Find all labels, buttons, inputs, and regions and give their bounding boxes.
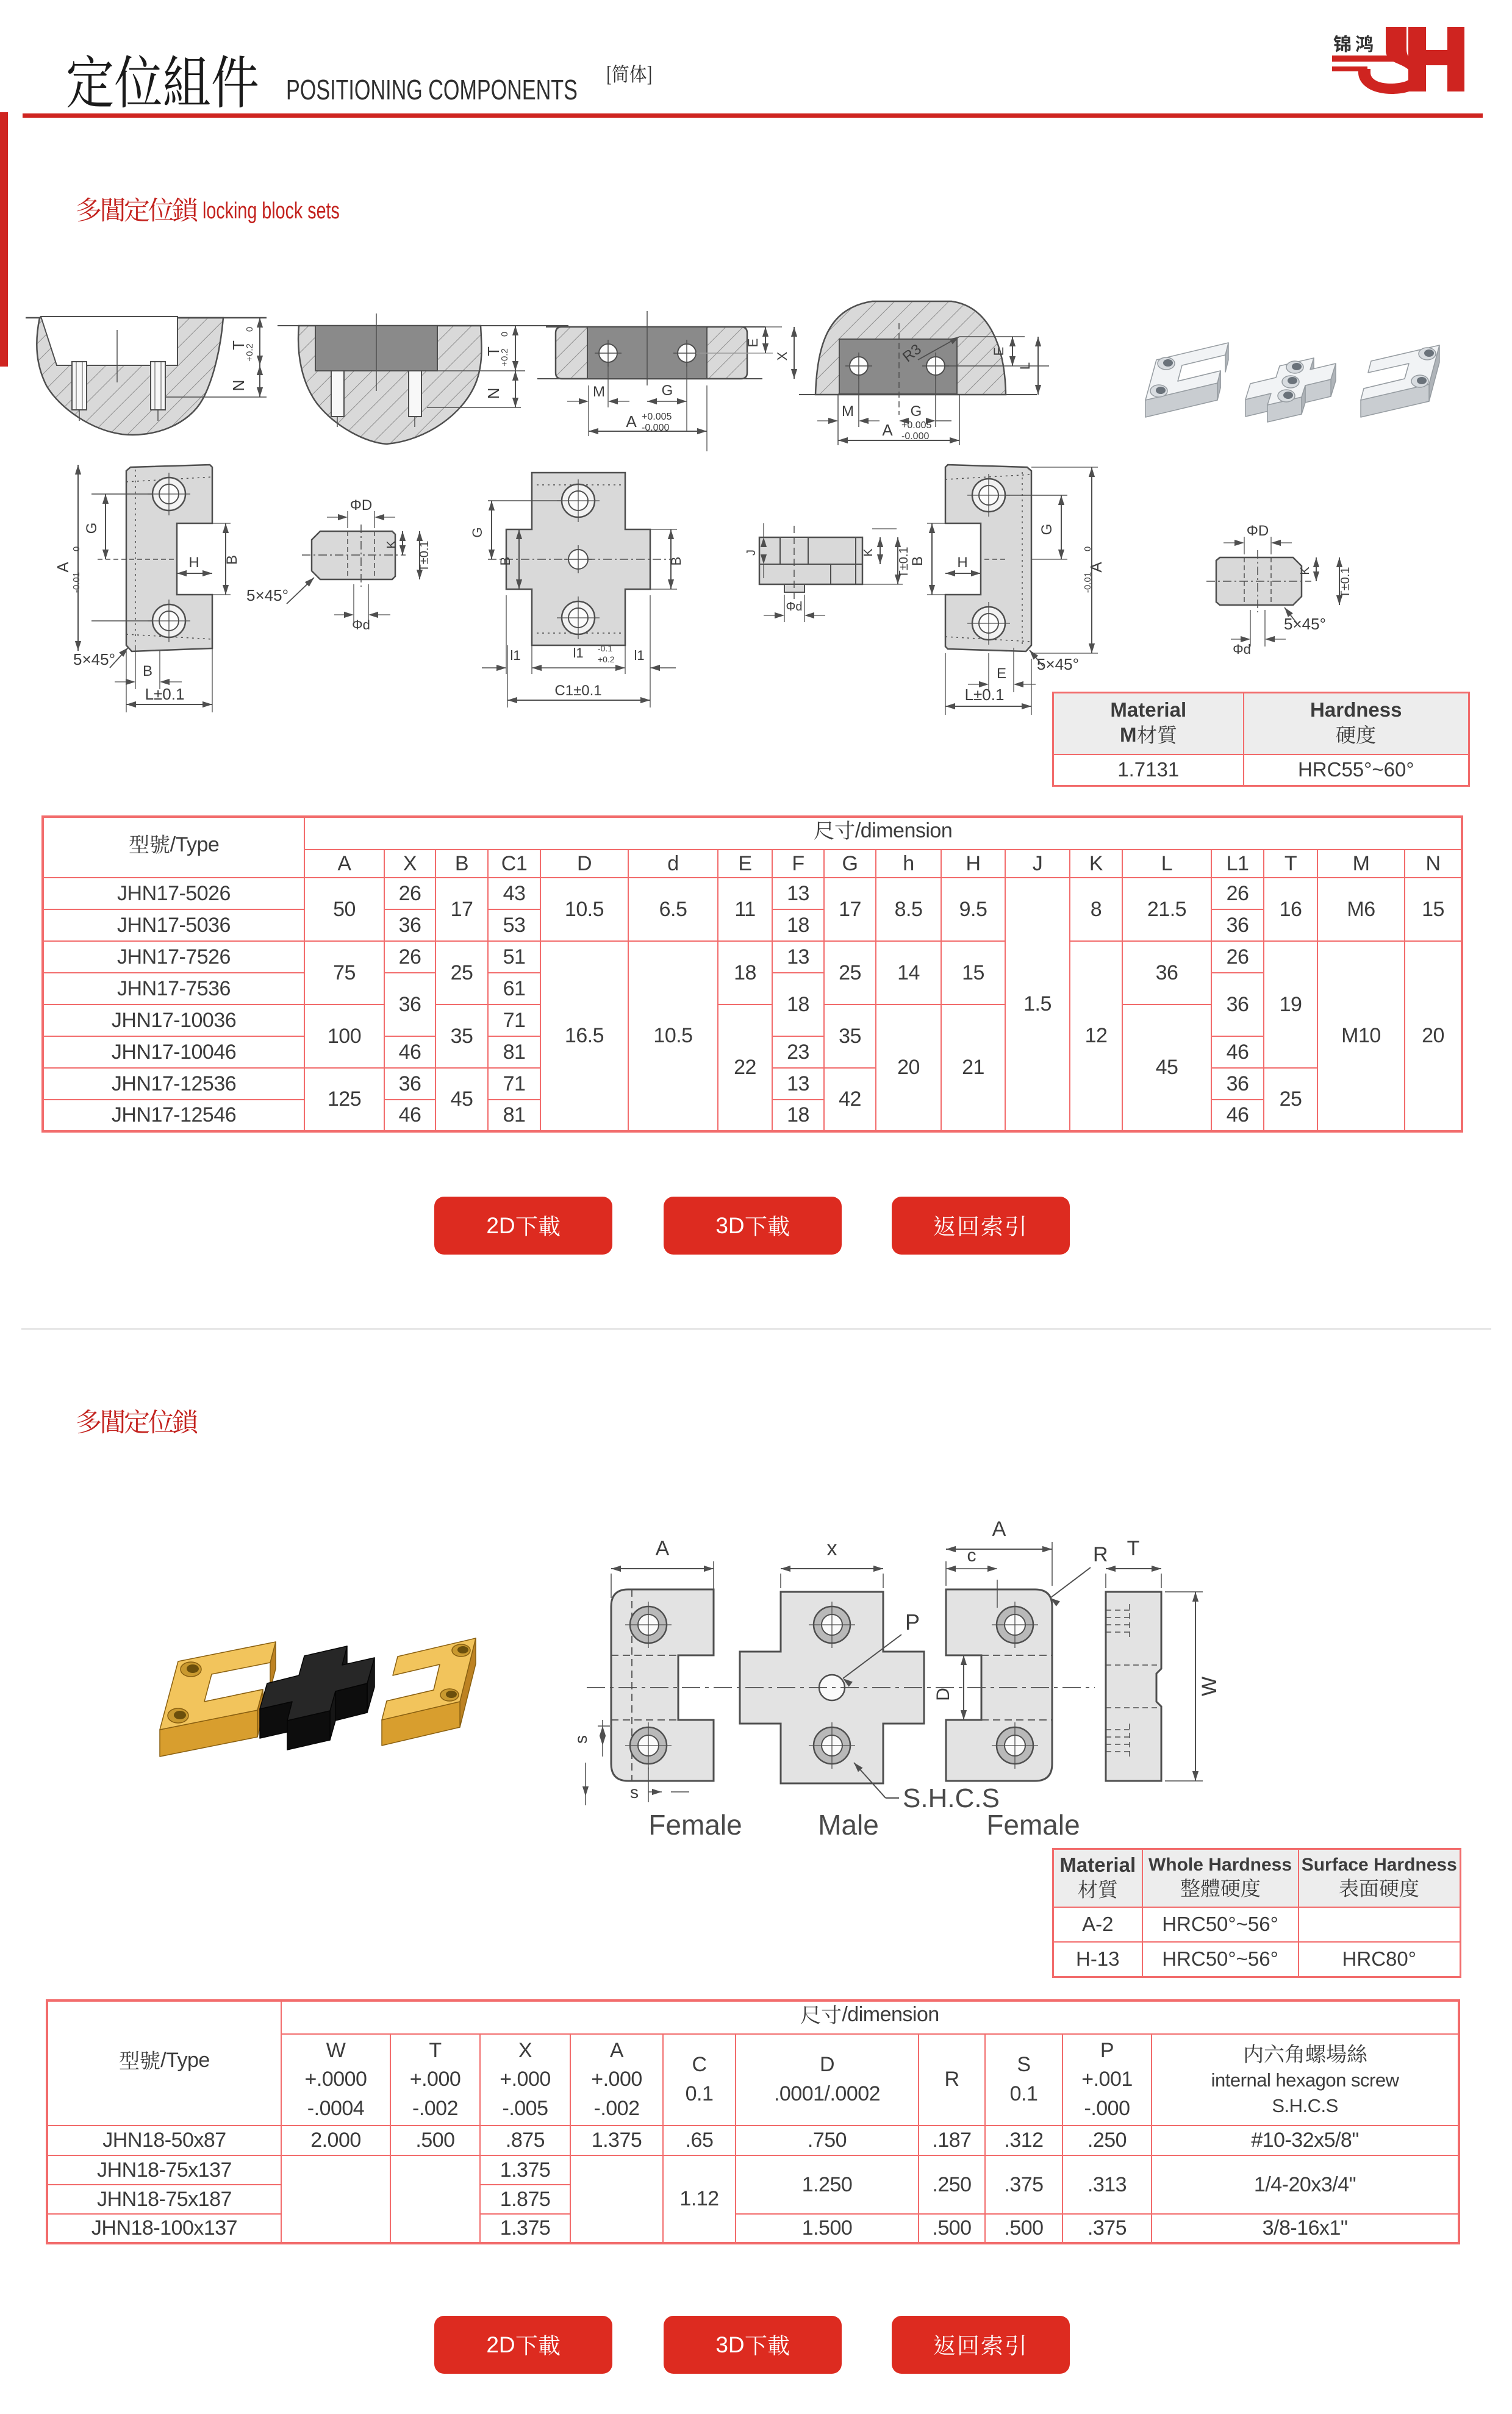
svg-text:5×45°: 5×45° bbox=[246, 586, 288, 604]
svg-text:J: J bbox=[745, 550, 758, 556]
svg-text:0: 0 bbox=[500, 332, 510, 337]
svg-text:P: P bbox=[905, 1610, 920, 1635]
svg-text:0: 0 bbox=[1083, 546, 1093, 551]
svg-text:L±0.1: L±0.1 bbox=[145, 685, 185, 703]
svg-text:A: A bbox=[882, 421, 893, 439]
svg-text:l1: l1 bbox=[634, 648, 644, 663]
svg-text:T±0.1: T±0.1 bbox=[897, 547, 911, 578]
svg-text:5×45°: 5×45° bbox=[1284, 615, 1326, 633]
svg-text:B: B bbox=[909, 556, 926, 566]
svg-text:-0.000: -0.000 bbox=[642, 423, 669, 433]
svg-text:5×45°: 5×45° bbox=[73, 650, 115, 668]
svg-text:s: s bbox=[630, 1783, 639, 1802]
svg-text:+0.005: +0.005 bbox=[642, 412, 672, 422]
svg-text:T: T bbox=[1127, 1537, 1140, 1560]
svg-text:Female: Female bbox=[986, 1809, 1080, 1841]
svg-text:0: 0 bbox=[71, 546, 82, 551]
svg-text:A: A bbox=[626, 412, 637, 431]
svg-text:+0.2: +0.2 bbox=[598, 654, 615, 664]
svg-text:N: N bbox=[484, 388, 503, 399]
svg-text:E: E bbox=[997, 665, 1006, 682]
svg-text:B: B bbox=[668, 557, 684, 566]
svg-text:-0.01: -0.01 bbox=[71, 572, 82, 593]
svg-text:E: E bbox=[991, 347, 1006, 356]
svg-text:M: M bbox=[593, 384, 605, 400]
svg-text:N: N bbox=[229, 380, 248, 392]
svg-text:K: K bbox=[862, 548, 875, 557]
svg-text:B: B bbox=[143, 663, 152, 679]
svg-text:l1: l1 bbox=[510, 648, 520, 663]
svg-text:B: B bbox=[498, 557, 513, 566]
svg-text:G: G bbox=[1039, 524, 1055, 535]
svg-text:-0.000: -0.000 bbox=[901, 431, 929, 442]
svg-text:R: R bbox=[1093, 1543, 1108, 1566]
svg-text:L±0.1: L±0.1 bbox=[965, 686, 1005, 704]
svg-text:Φd: Φd bbox=[1233, 642, 1251, 657]
svg-text:Φd: Φd bbox=[786, 600, 802, 614]
svg-text:l1: l1 bbox=[573, 645, 583, 661]
svg-text:x: x bbox=[827, 1537, 837, 1560]
svg-text:c: c bbox=[967, 1545, 976, 1566]
svg-text:ΦD: ΦD bbox=[1247, 523, 1269, 539]
svg-text:S.H.C.S: S.H.C.S bbox=[903, 1783, 1000, 1813]
svg-text:5×45°: 5×45° bbox=[1037, 655, 1079, 673]
svg-text:E: E bbox=[745, 338, 761, 348]
svg-text:G: G bbox=[84, 523, 100, 534]
svg-text:A: A bbox=[656, 1537, 670, 1560]
svg-text:+0.2: +0.2 bbox=[500, 348, 510, 367]
svg-text:A: A bbox=[54, 562, 72, 573]
svg-text:D: D bbox=[933, 1688, 953, 1701]
svg-text:L: L bbox=[1017, 362, 1033, 370]
svg-text:+0.005: +0.005 bbox=[901, 420, 931, 431]
svg-text:X: X bbox=[775, 351, 790, 360]
svg-text:Female: Female bbox=[648, 1809, 742, 1841]
svg-text:-0.1: -0.1 bbox=[598, 643, 612, 653]
svg-text:s: s bbox=[571, 1735, 590, 1744]
svg-text:A: A bbox=[1087, 562, 1105, 573]
svg-text:T±0.1: T±0.1 bbox=[418, 541, 431, 572]
svg-text:H: H bbox=[957, 554, 967, 571]
svg-text:+0.2: +0.2 bbox=[245, 343, 255, 362]
svg-text:C1±0.1: C1±0.1 bbox=[554, 682, 601, 699]
svg-text:M: M bbox=[842, 403, 854, 420]
svg-text:-0.01: -0.01 bbox=[1083, 572, 1093, 593]
svg-text:Φd: Φd bbox=[352, 617, 370, 632]
svg-text:G: G bbox=[662, 382, 673, 399]
svg-text:ΦD: ΦD bbox=[350, 497, 372, 514]
svg-text:A: A bbox=[992, 1517, 1006, 1541]
svg-text:K: K bbox=[385, 540, 398, 549]
svg-text:0: 0 bbox=[245, 327, 255, 332]
svg-text:K: K bbox=[1299, 567, 1312, 575]
svg-text:G: G bbox=[911, 403, 922, 420]
svg-text:W: W bbox=[1198, 1677, 1221, 1696]
svg-text:H: H bbox=[188, 554, 199, 571]
svg-text:G: G bbox=[470, 527, 485, 537]
svg-text:B: B bbox=[224, 555, 240, 565]
svg-text:Male: Male bbox=[818, 1809, 879, 1841]
svg-text:T±0.1: T±0.1 bbox=[1339, 567, 1352, 598]
